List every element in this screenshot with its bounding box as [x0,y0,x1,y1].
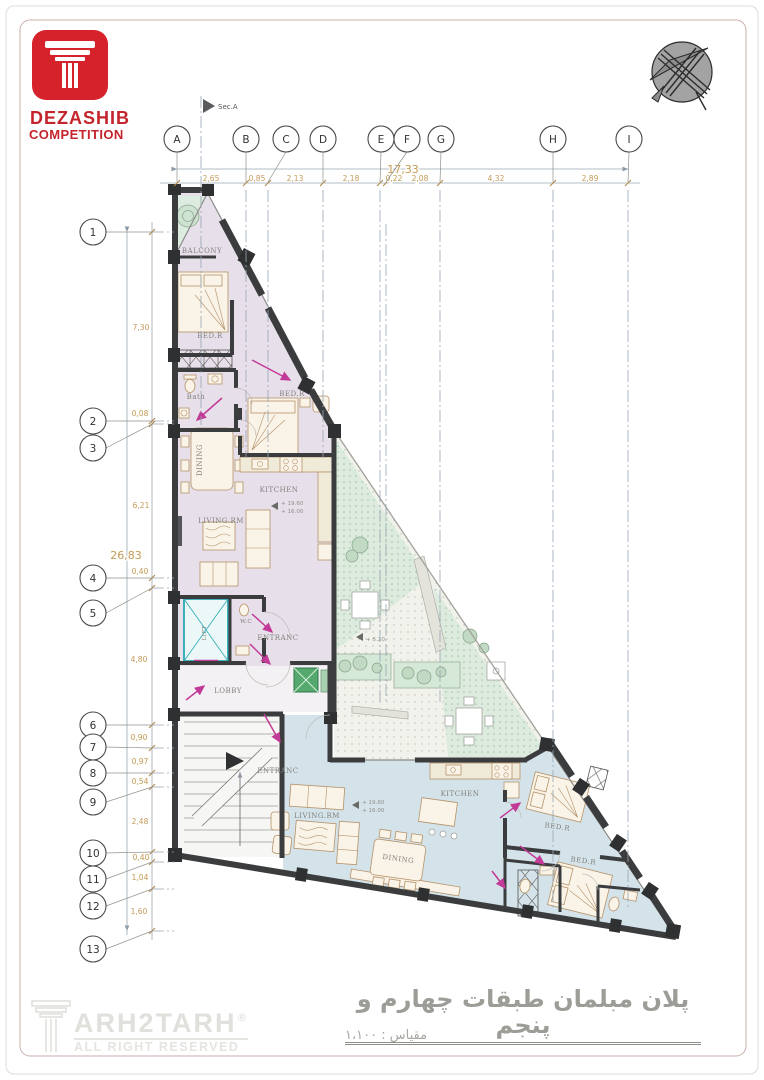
svg-text:H: H [549,134,557,146]
title-block: پلان مبلمان طبقات چهارم و پنجم مقیاس : ۱… [345,986,701,1045]
logo-subtitle: COMPETITION [29,127,124,142]
svg-text:5: 5 [90,608,97,620]
section-marker: Sec.A [203,99,238,113]
registered-mark: ® [237,1011,248,1024]
svg-text:4,80: 4,80 [131,655,148,664]
living-lower-label: LIVING.RM [294,812,340,820]
sheet-scale: مقیاس : ۱،۱۰۰ [345,1028,427,1043]
dezashib-logo [32,30,108,100]
svg-text:0,97: 0,97 [132,757,149,766]
svg-text:+ 19.60: + 19.60 [362,800,385,806]
svg-text:13: 13 [86,944,99,956]
svg-text:1,04: 1,04 [132,873,149,882]
kitchen-upper-label: KITCHEN [260,486,299,494]
svg-text:12: 12 [86,901,99,913]
svg-text:7,30: 7,30 [133,323,150,332]
svg-text:0,85: 0,85 [249,174,266,183]
living-upper-label: LIVING.RM [198,517,244,525]
svg-text:2,89: 2,89 [582,174,599,183]
svg-text:10: 10 [86,848,99,860]
sofa-icon [289,784,344,810]
wardrobe-icon [176,350,232,368]
section-label: Sec.A [218,103,238,111]
drawing-sheet: + 5.20 [0,0,764,1080]
wardrobe-icon [586,766,608,790]
svg-text:11: 11 [86,874,99,886]
north-arrow-icon [650,42,712,110]
svg-text:2,13: 2,13 [287,174,304,183]
rug-icon [294,820,336,851]
svg-text:G: G [437,134,445,146]
svg-text:+ 5.20: + 5.20 [366,637,385,643]
svg-text:0,90: 0,90 [131,733,148,742]
floor-plan-drawing: + 5.20 [0,0,764,1080]
svg-text:0,08: 0,08 [132,409,149,418]
svg-text:+ 16.00: + 16.00 [281,509,304,515]
logo-title: DEZASHIB [30,108,130,129]
lift: LIFT [184,599,228,661]
svg-text:1: 1 [90,227,97,239]
entrance-lower-label: ENTRANC [257,767,298,775]
svg-text:B: B [242,134,249,146]
svg-text:2,48: 2,48 [132,817,149,826]
lobby-planters [294,668,332,692]
left-dimensions: 26,83 7,30 0,08 6,21 0,40 4,80 0,90 0,97… [110,222,155,940]
svg-text:+ 19.60: + 19.60 [281,501,304,507]
svg-text:A: A [173,134,181,146]
svg-text:0,54: 0,54 [132,777,149,786]
svg-text:9: 9 [90,797,97,809]
svg-text:C: C [282,134,289,146]
dining-upper-label: DINING [196,444,204,476]
lift-label: LIFT [202,625,208,640]
svg-text:6: 6 [90,720,97,732]
section-flag-icon [203,99,215,113]
grid-lines-horizontal [152,232,174,931]
svg-text:4,32: 4,32 [488,174,505,183]
svg-text:2,65: 2,65 [203,174,220,183]
kitchen-lower-label: KITCHEN [441,790,480,798]
svg-text:E: E [378,134,385,146]
svg-text:F: F [404,134,410,146]
watermark-rights: ALL RIGHT RESERVED [74,1038,248,1054]
watermark-text: ARH2TARH [74,1008,237,1038]
left-total-dimension: 26,83 [110,549,142,562]
svg-text:6,21: 6,21 [133,501,150,510]
rug-icon [203,522,235,550]
svg-text:1,60: 1,60 [131,907,148,916]
svg-text:0,40: 0,40 [133,853,150,862]
svg-text:4: 4 [90,573,97,585]
svg-text:2,18: 2,18 [343,174,360,183]
svg-text:D: D [319,134,327,146]
bedroom-upper-2-label: BED.R [279,390,305,398]
svg-text:7: 7 [90,742,97,754]
lobby-label: LOBBY [214,687,242,695]
watermark: ARH2TARH® ALL RIGHT RESERVED [30,998,248,1054]
column-icon [32,30,108,100]
svg-text:2: 2 [90,416,97,428]
wc-label: W.C [240,619,252,625]
balcony-label: BALCONY [182,247,222,255]
svg-text:+ 16.00: + 16.00 [362,808,385,814]
sofa-icon [337,821,360,864]
svg-text:3: 3 [90,443,97,455]
bed-icon [178,272,228,332]
top-dimensions: 17,33 2,65 0,85 2,13 2,18 0,22 2,08 4,32… [160,163,640,186]
svg-text:I: I [627,134,630,146]
entrance-upper-label: ENTRANC [257,634,298,642]
tarh2tarh-logo-icon [30,998,72,1054]
svg-text:8: 8 [90,768,97,780]
bath-label: Bath [187,393,206,401]
svg-text:0,40: 0,40 [132,567,149,576]
svg-text:2,08: 2,08 [412,174,429,183]
